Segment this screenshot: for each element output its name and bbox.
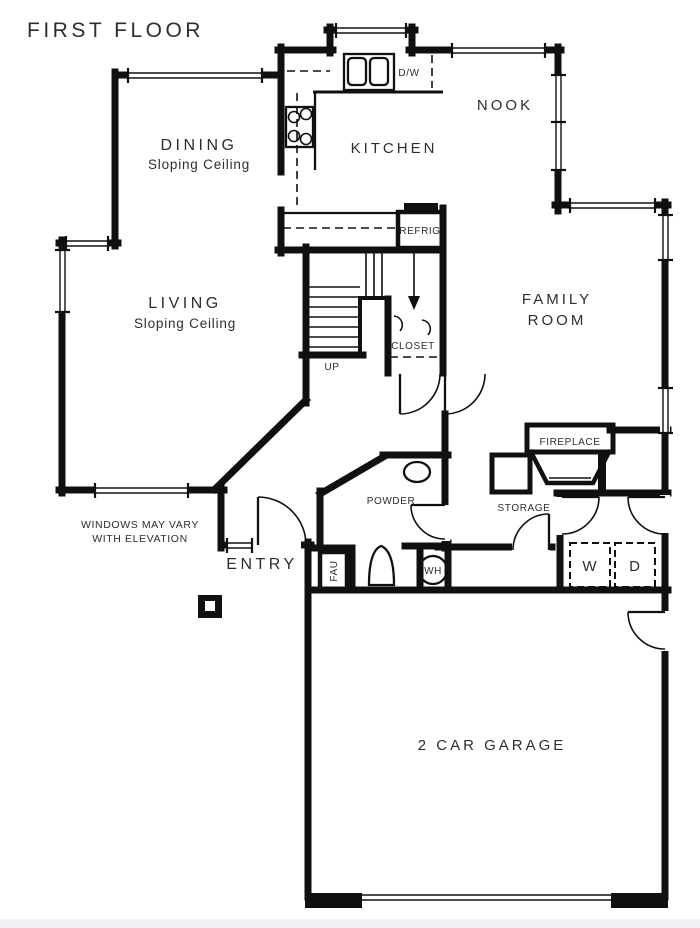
- toilet: [369, 546, 394, 585]
- note-line-2: WITH ELEVATION: [92, 533, 188, 545]
- fixture-label-dw: D/W: [398, 68, 419, 79]
- room-label-kitchen: KITCHEN: [351, 140, 438, 157]
- windows: [55, 23, 673, 553]
- stairs: [306, 252, 420, 355]
- back-door: [628, 497, 665, 534]
- kitchen-sink: [344, 54, 394, 90]
- fixture-label-wh: WH: [424, 566, 442, 577]
- hall-door: [400, 374, 440, 414]
- door-openings: [253, 495, 670, 651]
- fixture-label-dryer: D: [629, 558, 641, 575]
- stair-arrow: [408, 252, 420, 310]
- room-label-garage: 2 CAR GARAGE: [418, 737, 567, 754]
- family-room-door: [445, 374, 485, 414]
- room-label-storage: STORAGE: [498, 503, 551, 514]
- note-line-1: WINDOWS MAY VARY: [81, 519, 199, 531]
- fixture-label-washer: W: [582, 558, 597, 575]
- cooktop: [286, 107, 313, 147]
- page-title: FIRST FLOOR: [27, 19, 204, 42]
- powder-door: [411, 505, 445, 539]
- entry-door: [258, 497, 306, 545]
- fixture-label-up: UP: [324, 362, 339, 373]
- room-label-closet: CLOSET: [391, 341, 435, 352]
- garage-side-door: [628, 612, 665, 649]
- room-label-family-1: FAMILY: [522, 291, 592, 308]
- fixture-label-refrig: REFRIG: [399, 226, 440, 237]
- fixture-label-fireplace: FIREPLACE: [540, 437, 601, 448]
- page-edge: [0, 919, 700, 928]
- fixture-label-fau: FAU: [329, 560, 340, 581]
- room-label-nook: NOOK: [477, 97, 533, 114]
- room-label-dining: DINING: [161, 137, 238, 154]
- room-label-living: LIVING: [148, 295, 221, 312]
- floor-plan: FIRST FLOOR DINING Sloping Ceiling KITCH…: [0, 0, 700, 928]
- powder-sink: [404, 462, 430, 482]
- garage-door: [305, 893, 668, 908]
- laundry-door: [562, 497, 599, 534]
- storage-shelf-box: [492, 455, 530, 492]
- room-sub-living: Sloping Ceiling: [134, 316, 236, 331]
- porch-post: [198, 595, 222, 618]
- labels: FIRST FLOOR DINING Sloping Ceiling KITCH…: [27, 19, 641, 754]
- room-label-powder: POWDER: [367, 496, 416, 507]
- room-label-entry: ENTRY: [226, 556, 297, 573]
- room-sub-dining: Sloping Ceiling: [148, 157, 250, 172]
- room-label-family-2: ROOM: [528, 312, 587, 329]
